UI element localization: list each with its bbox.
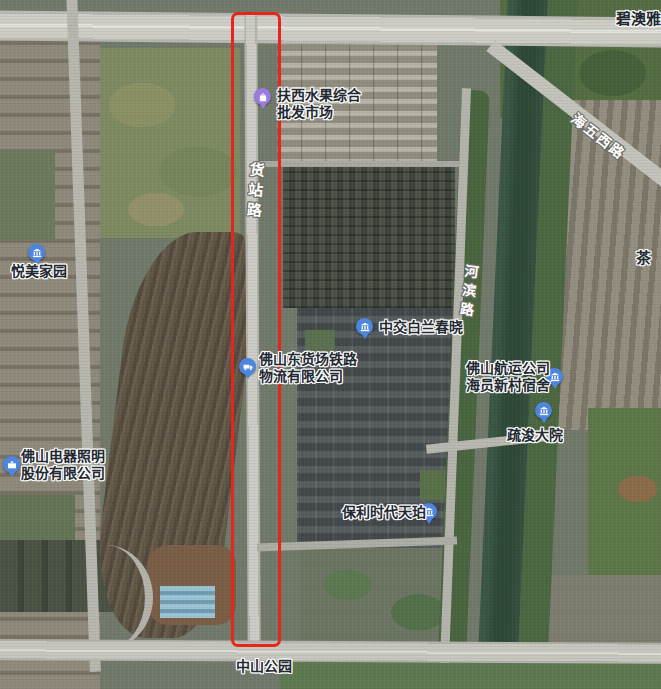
- shopping-bag-icon: [258, 88, 268, 106]
- park-bottom-strip: [280, 662, 661, 689]
- village-dense-roofs: [283, 166, 455, 308]
- poi-label-line: 佛山东货场铁路: [259, 351, 357, 368]
- building-icon: [539, 402, 549, 420]
- poi-marker-fsl[interactable]: [3, 456, 20, 473]
- satellite-map[interactable]: 扶西水果综合 批发市场 悦美家园 碧澳雅苑 中交白兰春晓 佛山东货场铁路 物流有…: [0, 0, 661, 689]
- poi-label-line: 股份有限公司: [21, 465, 105, 482]
- poi-marker-shujun[interactable]: [535, 402, 552, 419]
- park-right: [588, 408, 661, 588]
- poi-marker-logistics[interactable]: [239, 358, 256, 375]
- green-left-1: [0, 150, 55, 240]
- poi-marker-yuemei[interactable]: [28, 244, 45, 261]
- poi-label-fruit-market[interactable]: 扶西水果综合 批发市场: [277, 87, 361, 121]
- poi-label-line: 佛山电器照明: [21, 448, 105, 465]
- green-mid-bottom: [300, 548, 458, 640]
- building-icon: [32, 244, 42, 262]
- poi-label-zhongshan-park[interactable]: 中山公园: [236, 658, 292, 675]
- connector-market-south: [259, 161, 459, 167]
- building-icon: [550, 368, 560, 386]
- poi-label-hangyun[interactable]: 佛山航运公司 海员新村宿舍: [466, 360, 550, 394]
- poi-marker-fruit-market[interactable]: [254, 88, 271, 105]
- poi-label-line: 扶西水果综合: [277, 87, 361, 104]
- road-label-huozhanlu: 货站路: [242, 161, 267, 222]
- poi-marker-zhongjiao[interactable]: [356, 318, 373, 335]
- open-field: [100, 48, 240, 238]
- poi-label-shujun[interactable]: 疏浚大院: [507, 427, 563, 444]
- road-bottom: [0, 639, 661, 664]
- poi-label-biaoyayuan[interactable]: 碧澳雅苑: [616, 10, 661, 27]
- building-icon: [360, 318, 370, 336]
- poi-label-poly[interactable]: 保利时代天珀: [342, 504, 426, 521]
- poi-label-line: 物流有限公司: [259, 368, 357, 385]
- poi-label-yuemei[interactable]: 悦美家园: [11, 263, 67, 280]
- poi-label-line: 批发市场: [277, 104, 361, 121]
- briefcase-icon: [7, 456, 17, 474]
- poi-label-logistics[interactable]: 佛山东货场铁路 物流有限公司: [259, 351, 357, 385]
- blue-roof-warehouses: [160, 586, 215, 618]
- poi-label-line: 佛山航运公司: [466, 360, 550, 377]
- poi-label-cha[interactable]: 茶: [636, 249, 651, 266]
- poi-label-fsl[interactable]: 佛山电器照明 股份有限公司: [21, 448, 105, 482]
- poi-label-zhongjiao[interactable]: 中交白兰春晓: [379, 319, 463, 336]
- poi-label-line: 海员新村宿舍: [466, 377, 550, 394]
- truck-icon: [243, 358, 253, 376]
